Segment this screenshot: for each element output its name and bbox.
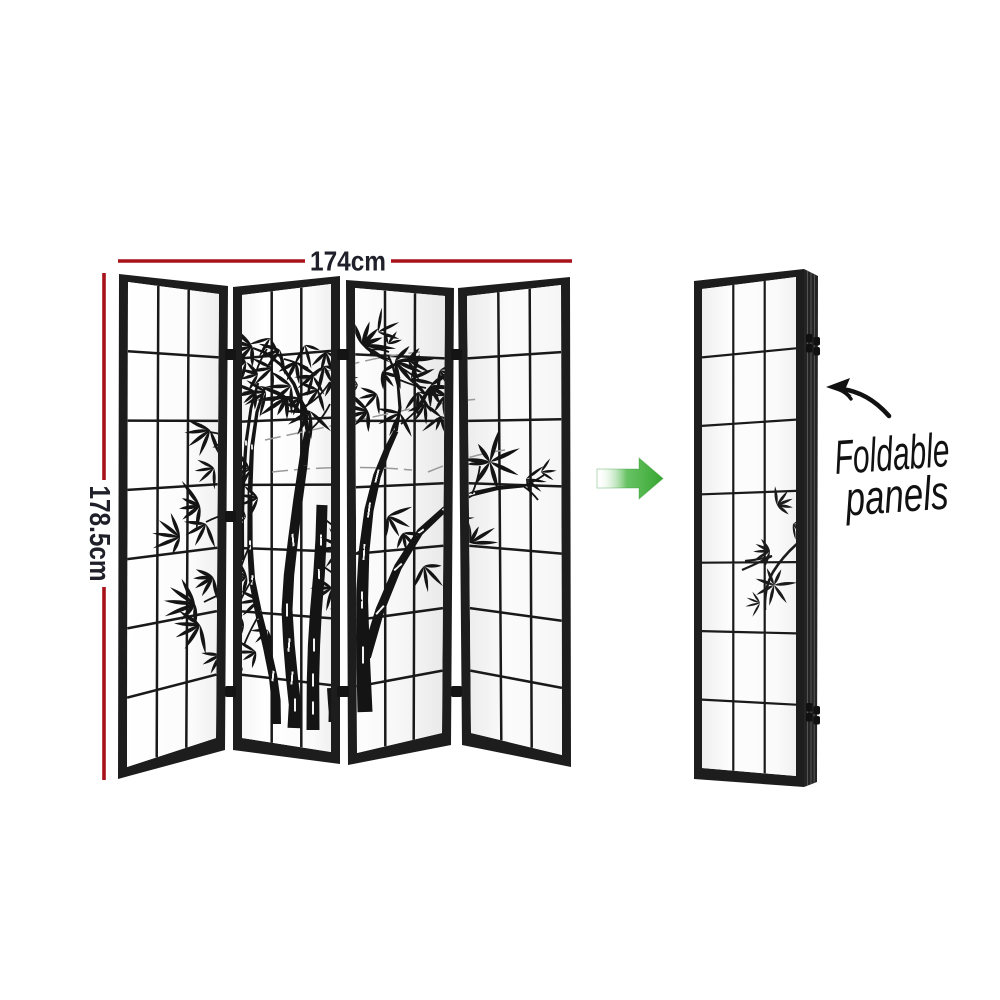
svg-text:174cm: 174cm (310, 246, 386, 277)
svg-text:panels: panels (842, 467, 950, 527)
svg-text:178.5cm: 178.5cm (83, 486, 115, 582)
